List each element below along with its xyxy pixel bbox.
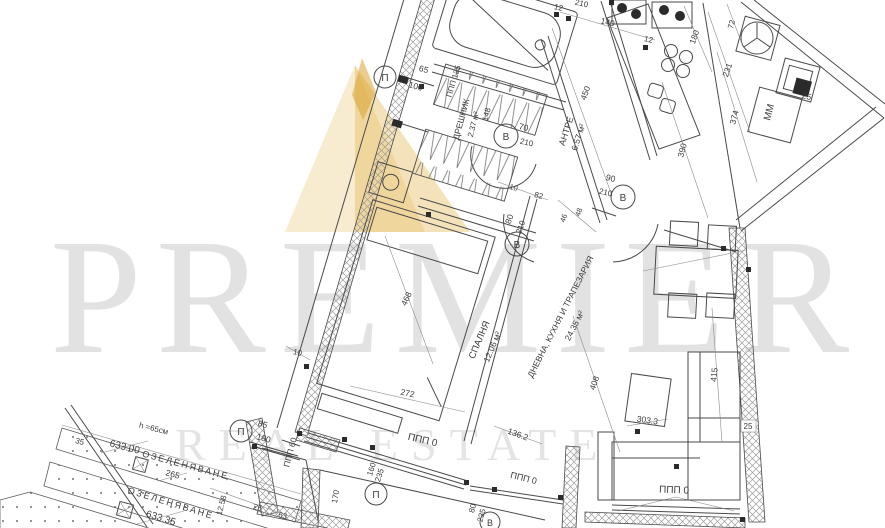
- dim-303-3: 303.3: [636, 414, 659, 427]
- window-mark-p: П: [372, 490, 379, 501]
- floorplan-page: PREMIER REAL ESTATE: [0, 0, 885, 528]
- ppp0-label-c: ППП 0: [659, 484, 690, 496]
- dim-12a: 12: [553, 2, 564, 13]
- dim-450: 450: [578, 84, 592, 101]
- shaft: [776, 58, 820, 102]
- win170: 170: [330, 489, 341, 504]
- dim-140: 140: [600, 16, 616, 29]
- window-mark-p85: П: [237, 427, 244, 438]
- sink-bowl: [647, 83, 664, 100]
- dim-12b: 12: [643, 34, 654, 45]
- door90-h: 210: [598, 187, 614, 199]
- door-terr-h: 235: [476, 507, 488, 523]
- wall-terrace-d: [301, 468, 320, 528]
- sink-bowl: [659, 98, 676, 115]
- win65-h: 100: [408, 79, 425, 92]
- door-mark-v-terrace: В: [487, 518, 493, 528]
- dim-10a: 10: [508, 182, 518, 193]
- dim-82: 82: [533, 190, 544, 201]
- parapet-note: h =65см: [138, 421, 169, 437]
- door70-h: 210: [519, 137, 535, 149]
- washing-machine: [748, 87, 802, 143]
- dim-415: 415: [708, 367, 719, 382]
- door-terr-w: 80: [467, 502, 478, 513]
- dim-72: 72: [726, 18, 737, 29]
- stove-burner: [677, 65, 690, 78]
- door-mark-v70: В: [503, 132, 510, 143]
- ppp0-label-b: ППП 0: [509, 470, 538, 486]
- dim-180a: 180: [687, 28, 701, 45]
- washing-machine-label: ММ: [762, 103, 777, 122]
- door-mark-v80: В: [514, 240, 521, 251]
- kitchen: [612, 0, 820, 143]
- wall-bottom: [585, 512, 745, 528]
- stove-burner: [680, 51, 693, 64]
- door-mark-v90: В: [620, 193, 627, 204]
- win65-w: 65: [418, 63, 430, 75]
- dim-25b: 25: [744, 422, 753, 431]
- floorplan-drawing: PREMIER REAL ESTATE: [0, 0, 885, 528]
- dim-231: 231: [720, 61, 734, 78]
- dim-210a: 210: [574, 0, 590, 10]
- window-mark-p65: П: [381, 73, 388, 84]
- door90-w: 90: [605, 172, 617, 184]
